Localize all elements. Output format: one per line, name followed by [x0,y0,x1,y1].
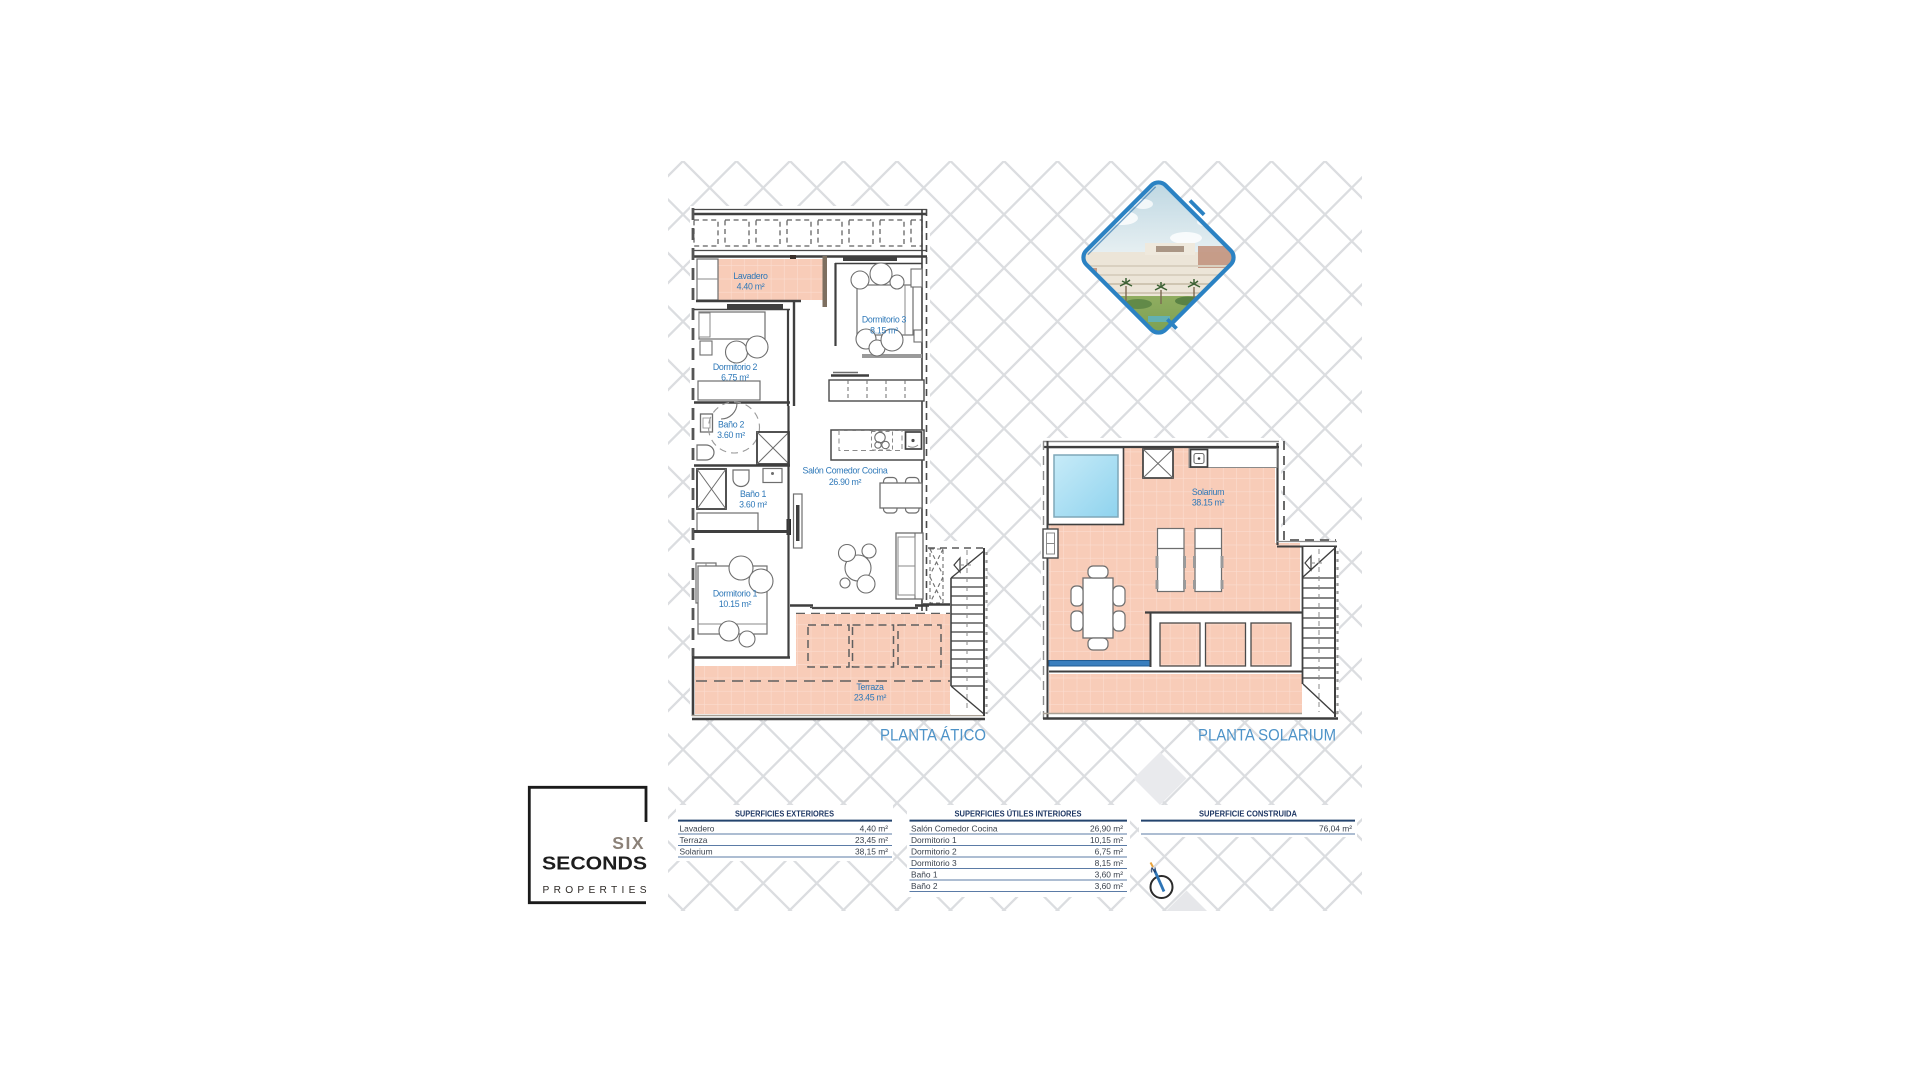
svg-text:10,15 m²: 10,15 m² [1090,835,1123,845]
svg-text:Dormitorio 3: Dormitorio 3 [911,858,957,868]
svg-text:38,15 m²: 38,15 m² [855,847,888,857]
svg-text:PLANTA SOLARIUM: PLANTA SOLARIUM [1198,726,1336,745]
svg-text:Baño 1: Baño 1 [740,489,766,499]
svg-text:N: N [1151,866,1156,875]
svg-text:SUPERFICIES ÚTILES INTERIORES: SUPERFICIES ÚTILES INTERIORES [955,808,1082,819]
svg-text:3,60 m²: 3,60 m² [1095,881,1124,891]
svg-text:Dormitorio 2: Dormitorio 2 [911,847,957,857]
svg-text:Terraza: Terraza [680,835,708,845]
svg-text:6,75 m²: 6,75 m² [1095,847,1124,857]
svg-text:23,45 m²: 23,45 m² [855,835,888,845]
svg-text:Solarium: Solarium [1192,487,1224,497]
svg-text:3,60 m²: 3,60 m² [1095,870,1124,880]
svg-text:SUPERFICIE CONSTRUIDA: SUPERFICIE CONSTRUIDA [1199,809,1297,819]
svg-text:Baño 2: Baño 2 [718,420,744,430]
svg-text:4,40 m²: 4,40 m² [860,824,889,834]
svg-text:6.75 m²: 6.75 m² [721,373,749,383]
svg-text:8,15 m²: 8,15 m² [1095,858,1124,868]
svg-text:Lavadero: Lavadero [733,271,768,281]
svg-text:4.40 m²: 4.40 m² [737,282,765,292]
svg-text:26,90 m²: 26,90 m² [1090,824,1123,834]
svg-text:3.60 m²: 3.60 m² [739,500,767,510]
svg-text:SIX: SIX [612,833,645,853]
svg-text:Baño 2: Baño 2 [911,881,938,891]
svg-text:PLANTA ÁTICO: PLANTA ÁTICO [880,726,986,745]
svg-text:Terraza: Terraza [856,682,884,692]
svg-text:Dormitorio 1: Dormitorio 1 [713,589,758,599]
svg-text:76,04 m²: 76,04 m² [1319,824,1352,834]
svg-text:Solarium: Solarium [680,847,713,857]
svg-text:Salón Comedor Cocina: Salón Comedor Cocina [911,824,998,834]
svg-text:38.15 m²: 38.15 m² [1192,498,1225,508]
svg-text:PROPERTIES: PROPERTIES [543,885,647,896]
svg-text:Salón Comedor Cocina: Salón Comedor Cocina [803,466,888,476]
svg-text:Dormitorio 3: Dormitorio 3 [862,315,907,325]
svg-text:SUPERFICIES EXTERIORES: SUPERFICIES EXTERIORES [735,809,834,819]
svg-text:26.90 m²: 26.90 m² [829,477,862,487]
svg-text:23.45 m²: 23.45 m² [854,693,887,703]
svg-text:Baño 1: Baño 1 [911,870,938,880]
svg-text:Dormitorio 2: Dormitorio 2 [713,362,758,372]
svg-text:SECONDS: SECONDS [542,854,647,874]
svg-text:Lavadero: Lavadero [680,824,715,834]
svg-text:3.60 m²: 3.60 m² [717,430,745,440]
svg-text:10.15 m²: 10.15 m² [719,599,752,609]
svg-text:8.15 m²: 8.15 m² [870,326,898,336]
svg-text:Dormitorio 1: Dormitorio 1 [911,835,957,845]
